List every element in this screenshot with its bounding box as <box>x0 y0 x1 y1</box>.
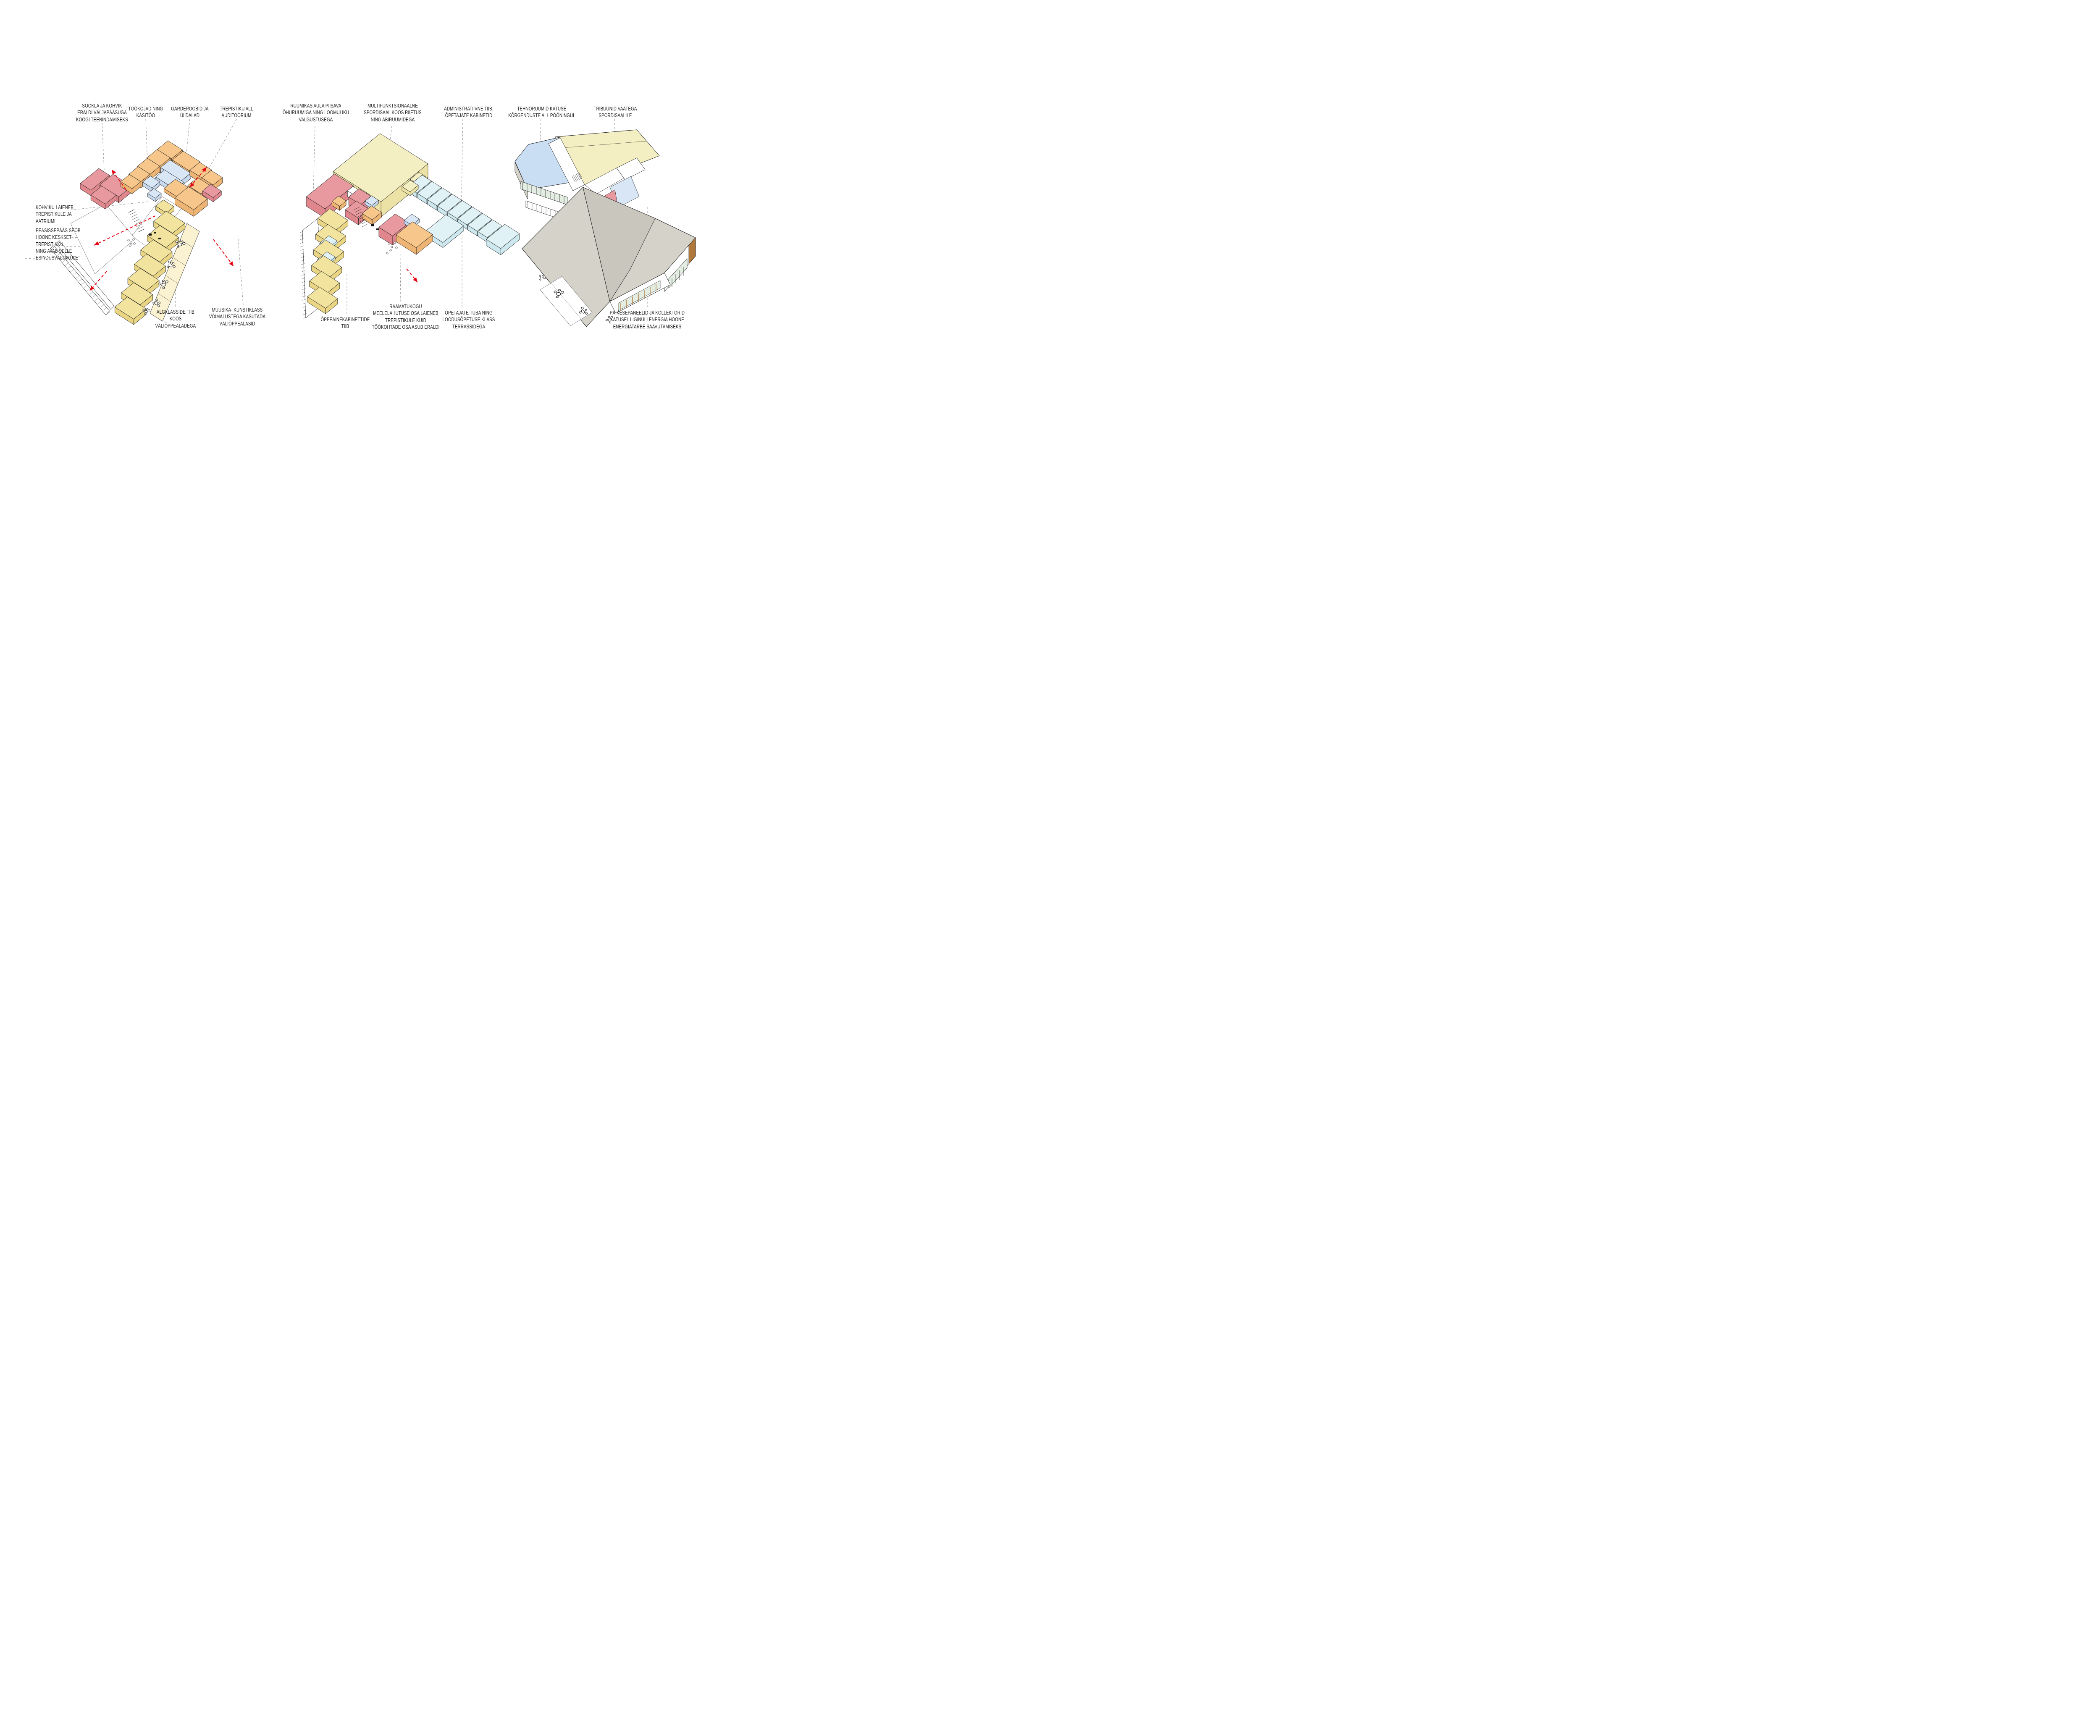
annotation-opetajate-tuba: ÕPETAJATE TUBA NING LOODUSÕPETUSE KLASS … <box>443 309 495 330</box>
annotation-paikesepaneelid: PÄIKESEPANEELID JA KOLLEKTORID KATUSEL L… <box>610 309 685 330</box>
hatch-line <box>132 217 138 220</box>
axonometric-diagrams-artwork <box>0 0 744 434</box>
cafe-chair <box>391 246 393 248</box>
annotation-tookojad: TÖÖKOJAD NING KÄSITÖÖ <box>129 105 163 119</box>
furniture-mark <box>371 224 374 226</box>
cafe-chair <box>386 252 388 254</box>
hatch-line <box>131 215 137 218</box>
annotation-oppeaine: ÕPPEAINEKABINETTIDE TIIB <box>321 316 370 330</box>
flow-arrowhead <box>229 261 234 266</box>
hatch-line <box>362 224 368 227</box>
annotation-ruumikas: RUUMIKAS AULA PIISAVA ÕHURUUMIGA NING LO… <box>283 102 349 123</box>
cafe-chair <box>133 239 134 240</box>
cafe-chair <box>388 243 390 244</box>
annotation-muusika: MUUSIKA- KUNSTIKLASS VÕIMALUSTEGA KASUTA… <box>209 307 265 327</box>
hatch-line <box>134 219 139 222</box>
cafe-chair <box>394 242 396 244</box>
annotation-sookla: SÖÖKLA JA KOHVIK ERALDI VÄLJAPÄÄSUGA KÖÖ… <box>76 102 128 123</box>
annotation-raamatukogu: RAAMATUKOGU MEELELAHUTUSE OSA LAIENEB TR… <box>372 303 439 330</box>
cafe-chair <box>390 249 391 251</box>
annotation-multifunktsionaalne: MULTIFUNKTSIONAALNE SPORDISAAL KOOS RIIE… <box>364 102 422 123</box>
annotation-trepistiku: TREPISTIKU ALL AUDITOORIUM <box>220 105 253 119</box>
leader-line <box>313 126 315 194</box>
cafe-chair <box>129 245 131 247</box>
hatch-line <box>130 212 136 215</box>
flow-arrow <box>213 239 234 266</box>
furniture-mark <box>376 228 379 230</box>
cafe-chair <box>128 239 129 241</box>
cafe-chair <box>130 242 132 244</box>
furniture-mark <box>154 232 156 233</box>
diagram-page: SÖÖKLA JA KOHVIK ERALDI VÄLJAPÄÄSUGA KÖÖ… <box>0 0 744 434</box>
furniture-mark <box>158 238 161 239</box>
annotation-tribuunid: TRIBÜÜNID VAATEGA SPORDISAALILE <box>593 105 637 119</box>
cafe-chair <box>134 243 135 244</box>
furniture-mark <box>149 233 152 236</box>
annotation-kohviku: KOHVIKU LAIENEB TREPISTIKULE JA AATRIUMI <box>36 204 73 225</box>
leader-line <box>238 233 243 305</box>
stair-rail <box>129 210 134 212</box>
cafe-chair <box>396 247 397 249</box>
annotation-garderoobid: GARDEROOBID JA ÜLDALAD <box>171 105 208 119</box>
annotation-peasissepaas: PEASISSEPÄÄS SEOB HOONE KESKSET TREPISTI… <box>36 227 81 261</box>
annotation-algklasside: ALGKLASSIDE TIIB KOOS VÄLIÕPPEALADEGA <box>155 309 196 329</box>
annotation-tehnoruumid: TEHNORUUMID KATUSE KÕRGENDUSTE ALL PÖÖNI… <box>508 105 575 119</box>
annotation-administratiivne: ADMINISTRATIIVNE TIIB, ÕPETAJATE KABINET… <box>444 105 493 119</box>
flow-arrowhead <box>112 170 116 175</box>
